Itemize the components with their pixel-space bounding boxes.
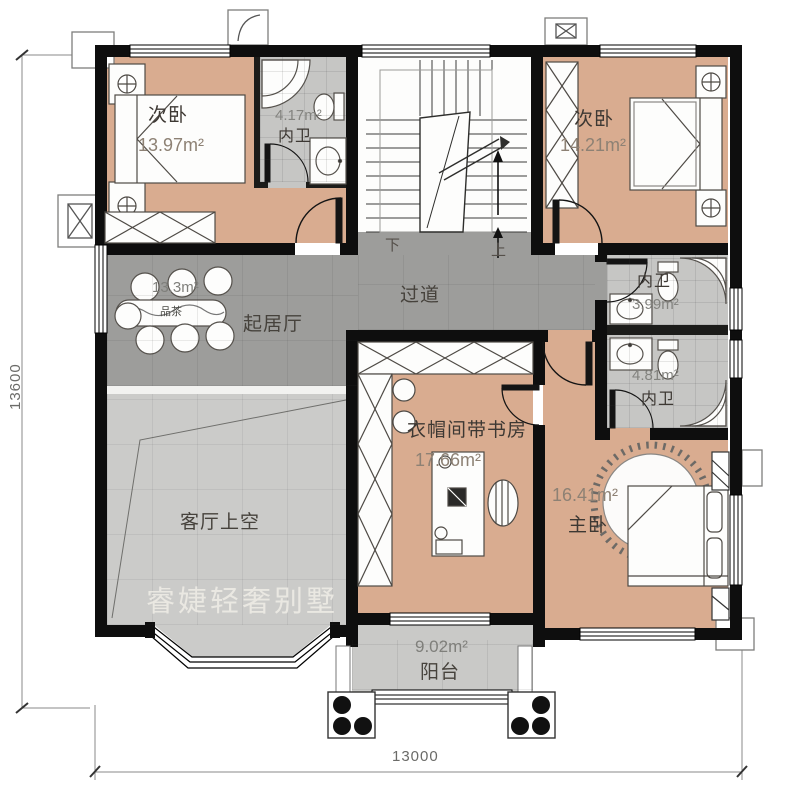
bath-upper-name: 内卫 xyxy=(637,274,671,290)
study-name: 衣帽间带书房 xyxy=(407,421,527,440)
bath-top-name: 内卫 xyxy=(278,129,312,145)
floorplan-linework xyxy=(0,0,800,800)
watermark: 睿婕轻奢别墅 xyxy=(146,588,338,617)
master-name: 主卧 xyxy=(568,516,608,535)
bath-upper-area: 3.99m² xyxy=(632,297,679,312)
bedroom-left-area: 13.97m² xyxy=(138,136,204,154)
void-name: 客厅上空 xyxy=(180,513,260,532)
dimension-height: 13600 xyxy=(8,363,23,410)
bedroom-right-area: 14.21m² xyxy=(560,136,626,154)
bath-lower-area: 4.81m² xyxy=(632,368,679,383)
balcony-area: 9.02m² xyxy=(415,638,468,655)
living-area: 13.3m² xyxy=(152,280,199,295)
tea-table-label: 品茶 xyxy=(160,307,182,318)
stairs-down-label: 下 xyxy=(385,238,400,253)
bath-top-area: 4.17m² xyxy=(275,108,322,123)
bath-lower-name: 内卫 xyxy=(641,392,675,408)
corridor-name: 过道 xyxy=(400,286,440,305)
dimension-width: 13000 xyxy=(392,749,439,764)
bedroom-left-name: 次卧 xyxy=(148,106,188,125)
living-name: 起居厅 xyxy=(243,315,303,334)
study-area: 17.66m² xyxy=(415,451,481,469)
master-area: 16.41m² xyxy=(552,486,618,504)
floorplan-page: 次卧 13.97m² 4.17m² 内卫 次卧 14.21m² 过道 起居厅 1… xyxy=(0,0,800,800)
balcony-railing xyxy=(372,690,512,704)
stairs-up-label: 上 xyxy=(491,243,506,258)
bedroom-right-name: 次卧 xyxy=(574,110,614,129)
balcony-name: 阳台 xyxy=(420,663,460,682)
